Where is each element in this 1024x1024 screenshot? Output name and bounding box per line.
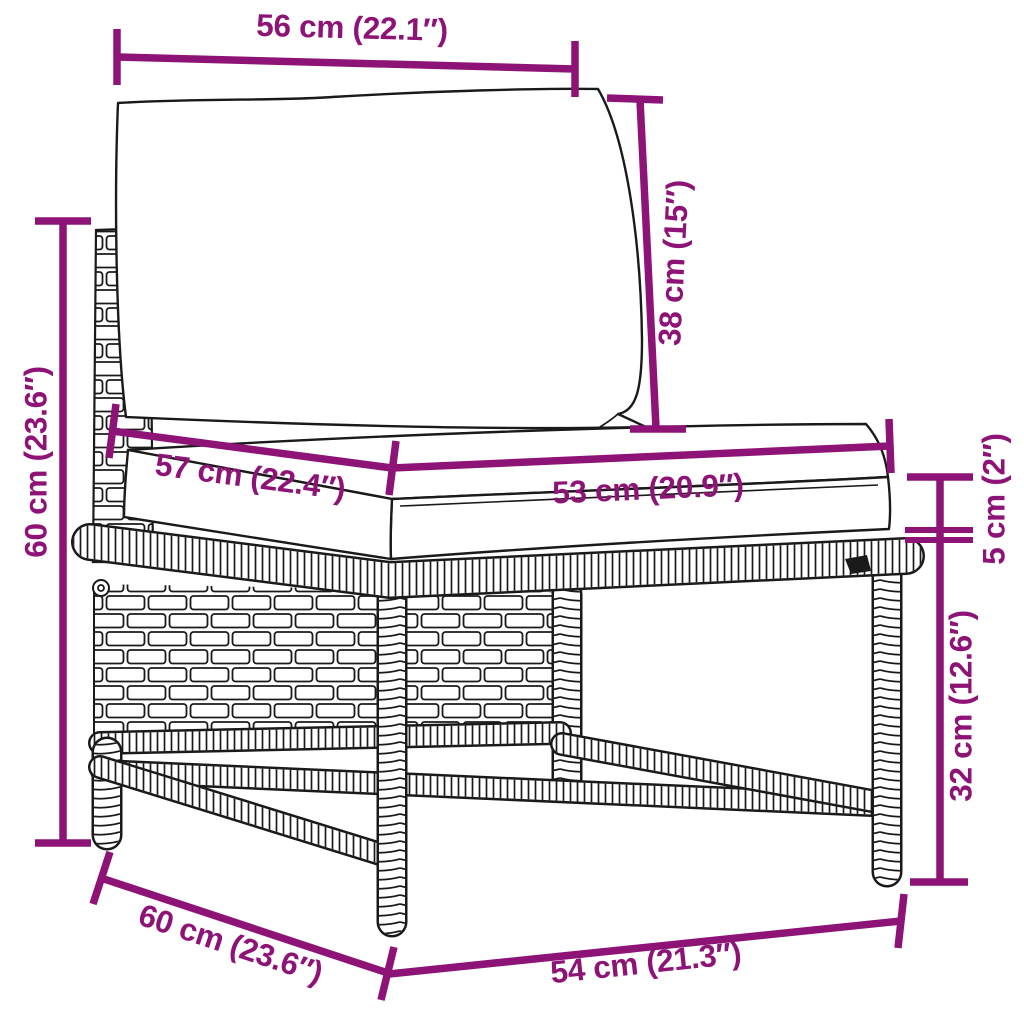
back-cushion [116,89,646,429]
dim-label-base-width: 54 cm (21.3″) [549,934,743,990]
diagram-canvas: 56 cm (22.1″) 38 cm (15″) 57 cm (22.4″) … [0,0,1024,1024]
dim-label-frame-height: 32 cm (12.6″) [942,610,978,802]
product-dimension-diagram: 56 cm (22.1″) 38 cm (15″) 57 cm (22.4″) … [0,0,1024,1024]
dim-label-back-width: 56 cm (22.1″) [256,7,448,48]
dim-label-total-height: 60 cm (23.6″) [17,366,53,558]
dim-label-back-height: 38 cm (15″) [651,179,696,347]
screw-detail [93,580,109,596]
rattan-frame-panel [94,584,560,744]
stretcher-back [100,733,560,743]
dim-label-cushion-thickness: 5 cm (2″) [975,433,1011,564]
sofa-line-art [90,89,906,922]
